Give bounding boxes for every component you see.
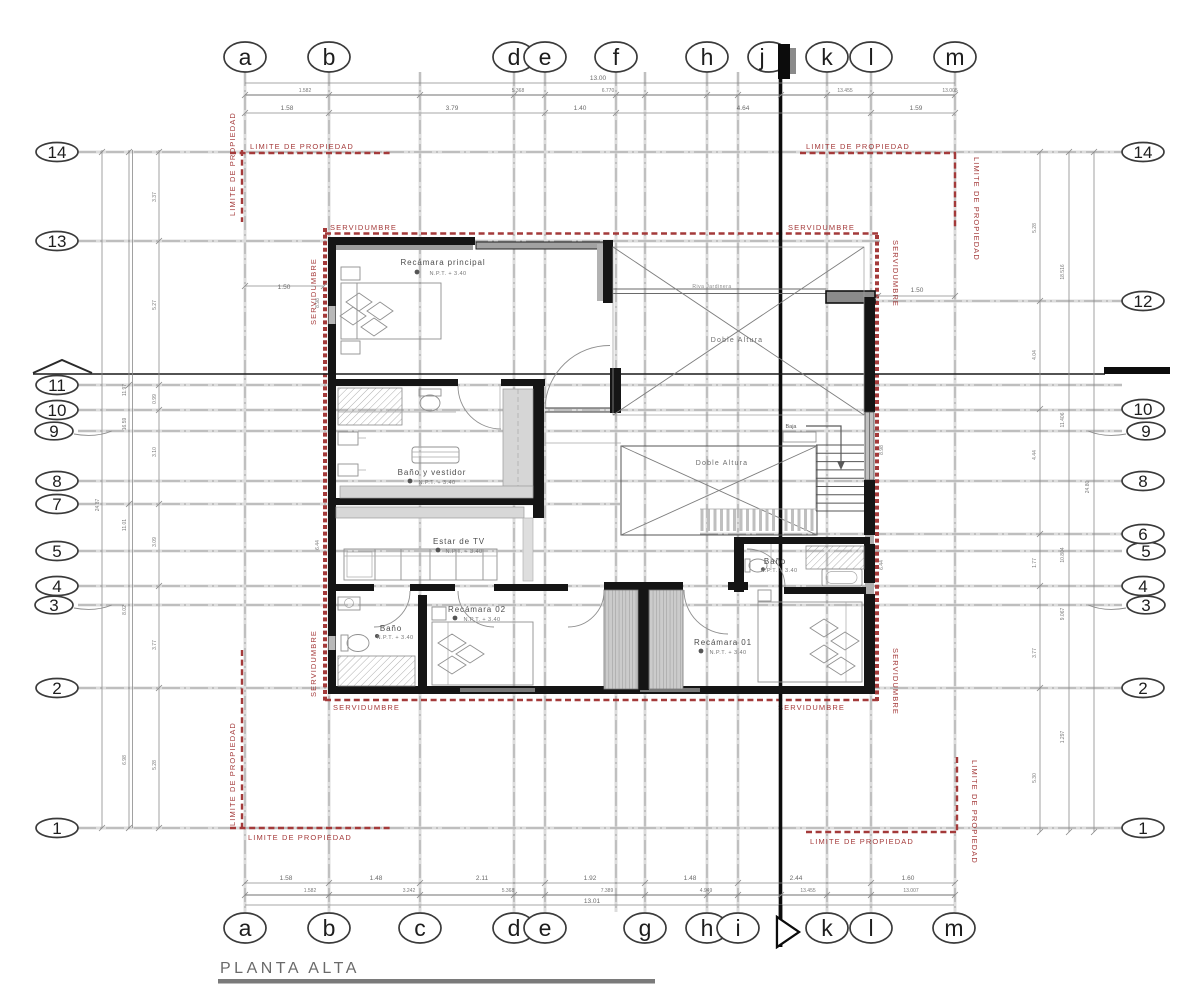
svg-text:1.582: 1.582 [304,888,317,894]
svg-text:SERVIDUMBRE: SERVIDUMBRE [788,223,855,232]
svg-text:Baño y vestidor: Baño y vestidor [398,468,467,477]
svg-text:d: d [508,44,521,70]
svg-text:LIMITE DE PROPIEDAD: LIMITE DE PROPIEDAD [248,833,352,842]
svg-text:1.48: 1.48 [684,875,697,882]
svg-text:5.368: 5.368 [502,888,515,894]
svg-text:5.27: 5.27 [152,300,158,310]
svg-text:5.28: 5.28 [152,760,158,770]
svg-text:8.02: 8.02 [122,605,128,615]
svg-text:5.30: 5.30 [1032,773,1038,783]
svg-text:14: 14 [48,143,67,162]
svg-text:13.01: 13.01 [584,898,601,905]
svg-text:3.77: 3.77 [152,640,158,650]
svg-text:1.582: 1.582 [299,88,312,94]
svg-text:LIMITE DE PROPIEDAD: LIMITE DE PROPIEDAD [972,157,981,261]
svg-text:l: l [868,915,873,941]
svg-text:PLANTA ALTA: PLANTA ALTA [220,960,360,977]
svg-text:m: m [945,44,964,70]
svg-text:Doble Altura: Doble Altura [696,460,749,467]
svg-text:SERVIDUMBRE: SERVIDUMBRE [330,223,397,232]
svg-text:1.297: 1.297 [1060,731,1066,744]
svg-text:k: k [821,915,833,941]
svg-text:9: 9 [1141,422,1150,441]
svg-text:13.007: 13.007 [903,888,919,894]
svg-text:3.242: 3.242 [403,888,416,894]
svg-text:l: l [868,44,873,70]
svg-text:8: 8 [52,472,61,491]
svg-text:1: 1 [52,819,61,838]
svg-text:Recámara principal: Recámara principal [400,258,485,267]
svg-text:SERVIDUMBRE: SERVIDUMBRE [309,630,318,697]
svg-text:6.770: 6.770 [602,88,615,94]
svg-text:11.97: 11.97 [122,384,128,396]
svg-text:N.P.T. + 3.40: N.P.T. + 3.40 [761,568,798,574]
svg-text:e: e [539,44,552,70]
svg-text:6: 6 [1138,525,1147,544]
svg-text:LIMITE DE PROPIEDAD: LIMITE DE PROPIEDAD [970,760,979,864]
svg-text:3.79: 3.79 [446,105,459,112]
svg-text:h: h [701,44,714,70]
svg-text:d: d [508,915,521,941]
svg-text:13: 13 [48,232,67,251]
svg-text:1.50: 1.50 [278,284,291,291]
svg-text:8.98: 8.98 [315,298,321,308]
svg-text:a: a [239,44,252,70]
svg-text:j: j [758,44,764,70]
svg-text:LIMITE DE PROPIEDAD: LIMITE DE PROPIEDAD [806,142,910,151]
svg-text:e: e [539,915,552,941]
svg-text:1.58: 1.58 [280,875,293,882]
svg-text:i: i [735,915,740,941]
svg-text:8.98: 8.98 [879,445,885,455]
svg-text:6.44: 6.44 [879,560,885,570]
svg-text:f: f [613,44,620,70]
svg-text:4.64: 4.64 [737,105,750,112]
svg-text:m: m [944,915,963,941]
svg-text:LIMITE DE PROPIEDAD: LIMITE DE PROPIEDAD [250,142,354,151]
svg-text:2: 2 [52,679,61,698]
svg-text:1.40: 1.40 [574,105,587,112]
svg-text:7: 7 [52,495,61,514]
svg-text:9: 9 [49,422,58,441]
svg-text:9.067: 9.067 [1060,608,1066,621]
svg-text:13.455: 13.455 [837,88,853,94]
svg-text:4.949: 4.949 [700,888,713,894]
svg-text:1: 1 [1138,819,1147,838]
svg-text:7.389: 7.389 [601,888,614,894]
svg-text:b: b [323,915,336,941]
svg-text:N.P.T. + 3.40: N.P.T. + 3.40 [464,617,501,623]
svg-text:5.28: 5.28 [1032,223,1038,233]
svg-text:13.00: 13.00 [590,75,607,82]
svg-text:2: 2 [1138,679,1147,698]
svg-text:5: 5 [1141,542,1150,561]
svg-text:8: 8 [1138,472,1147,491]
svg-text:2.11: 2.11 [476,875,489,882]
svg-text:4.44: 4.44 [1032,450,1038,460]
svg-text:Recámara 01: Recámara 01 [694,638,752,647]
svg-text:3.37: 3.37 [152,192,158,202]
svg-text:13.005: 13.005 [942,88,958,94]
svg-text:1.50: 1.50 [911,287,924,294]
svg-text:3: 3 [1141,596,1150,615]
svg-text:10.804: 10.804 [1060,547,1066,563]
svg-text:Estar de TV: Estar de TV [433,537,485,546]
svg-text:SERVIDUMBRE: SERVIDUMBRE [891,240,900,307]
svg-text:14: 14 [1134,143,1153,162]
svg-text:4: 4 [1138,577,1147,596]
svg-text:g: g [639,915,652,941]
svg-text:4: 4 [52,577,61,596]
svg-text:a: a [239,915,252,941]
svg-text:5: 5 [52,542,61,561]
svg-text:6.98: 6.98 [122,755,128,765]
svg-text:11: 11 [48,376,66,395]
svg-text:13.455: 13.455 [800,888,816,894]
svg-text:4.04: 4.04 [1032,350,1038,360]
svg-text:LIMITE DE PROPIEDAD: LIMITE DE PROPIEDAD [228,112,237,216]
svg-text:N.P.T. + 3.40: N.P.T. + 3.40 [430,271,467,277]
svg-text:SERVIDUMBRE: SERVIDUMBRE [891,648,900,715]
svg-text:24.80: 24.80 [1085,481,1091,494]
svg-text:1.92: 1.92 [584,875,597,882]
svg-text:SERVIDUMBRE: SERVIDUMBRE [778,703,845,712]
svg-text:3.10: 3.10 [152,447,158,457]
svg-text:10: 10 [48,401,67,420]
svg-text:Recámara 02: Recámara 02 [448,605,506,614]
svg-text:N.P.T. + 3.40: N.P.T. + 3.40 [419,480,456,486]
svg-text:c: c [414,915,426,941]
svg-text:1.77: 1.77 [1032,558,1038,568]
svg-text:2.44: 2.44 [790,875,803,882]
svg-text:b: b [323,44,336,70]
svg-text:N.P.T. + 3.40: N.P.T. + 3.40 [377,635,414,641]
svg-text:18.516: 18.516 [1060,264,1066,280]
svg-text:12: 12 [1134,292,1153,311]
svg-text:5.368: 5.368 [512,88,525,94]
svg-text:3: 3 [49,596,58,615]
svg-text:6.44: 6.44 [315,540,321,550]
svg-text:1.58: 1.58 [281,105,294,112]
svg-text:1.48: 1.48 [370,875,383,882]
svg-text:N.P.T. + 3.40: N.P.T. + 3.40 [710,650,747,656]
svg-text:1.59: 1.59 [910,105,923,112]
svg-text:SERVIDUMBRE: SERVIDUMBRE [333,703,400,712]
svg-text:LIMITE DE PROPIEDAD: LIMITE DE PROPIEDAD [228,722,237,826]
svg-text:k: k [821,44,833,70]
svg-text:3.77: 3.77 [1032,648,1038,658]
svg-text:N.P.T. + 3.40: N.P.T. + 3.40 [446,549,483,555]
svg-text:SERVIDUMBRE: SERVIDUMBRE [309,258,318,325]
svg-text:0.99: 0.99 [152,394,158,404]
svg-text:Baño: Baño [380,624,402,633]
svg-text:3.09: 3.09 [152,537,158,547]
svg-text:Riva Jardinera: Riva Jardinera [692,284,731,290]
svg-text:Doble Altura: Doble Altura [711,337,764,344]
svg-text:24.87: 24.87 [95,499,101,512]
svg-text:Baja: Baja [785,424,797,430]
svg-text:16.59: 16.59 [122,418,128,431]
svg-text:11.01: 11.01 [122,519,128,531]
svg-text:1.60: 1.60 [902,875,915,882]
svg-text:h: h [701,915,714,941]
svg-text:Baño: Baño [764,557,786,566]
svg-text:LIMITE DE PROPIEDAD: LIMITE DE PROPIEDAD [810,837,914,846]
svg-text:10: 10 [1134,400,1153,419]
svg-text:11.406: 11.406 [1060,412,1066,427]
